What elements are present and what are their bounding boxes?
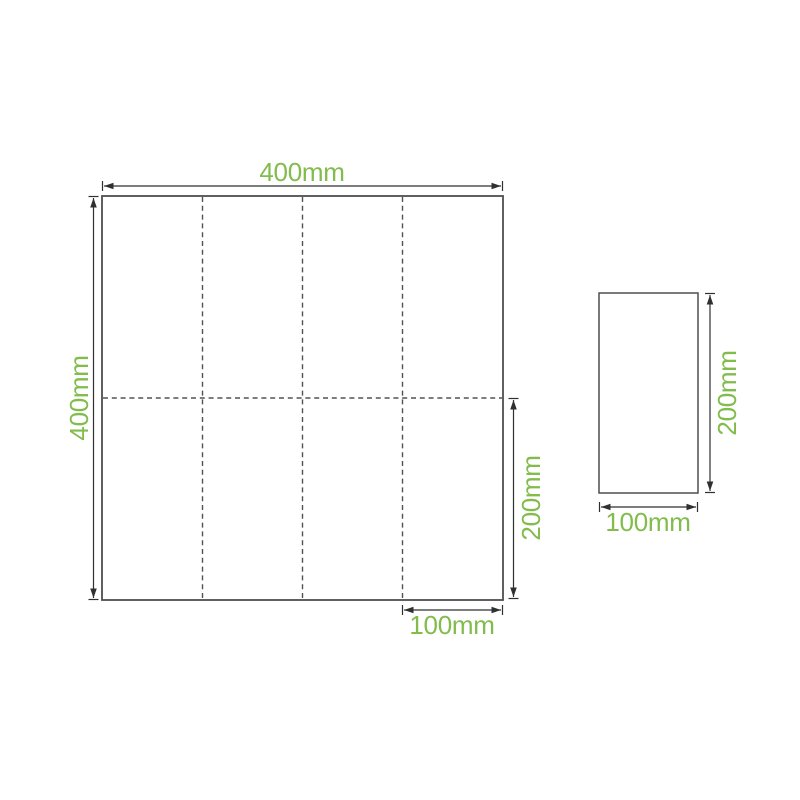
unfolded-sheet-outline (102, 196, 503, 600)
dimension-sheet-width: 400mm (103, 157, 503, 191)
unfolded-sheet (102, 196, 503, 600)
dimension-label-half-height: 200mm (516, 455, 546, 540)
dimension-sheet-height: 400mm (64, 197, 99, 600)
dimension-label-folded-height: 200mm (712, 350, 742, 435)
dimension-diagram-canvas: 400mm 400mm 200mm 100mm (0, 0, 800, 800)
folded-sheet-outline (599, 293, 698, 493)
dimension-half-height: 200mm (509, 399, 547, 599)
dimension-label-sheet-height: 400mm (64, 355, 94, 440)
napkin-dimension-diagram-page: 400mm 400mm 200mm 100mm (0, 0, 800, 800)
folded-sheet (599, 293, 698, 493)
dimension-panel-width: 100mm (403, 605, 503, 640)
dimension-folded-height: 200mm (705, 294, 742, 493)
dimension-label-panel-width: 100mm (409, 610, 494, 640)
dimension-label-folded-width: 100mm (605, 507, 690, 537)
dimension-folded-width: 100mm (600, 502, 698, 537)
dimension-label-sheet-width: 400mm (259, 157, 344, 187)
